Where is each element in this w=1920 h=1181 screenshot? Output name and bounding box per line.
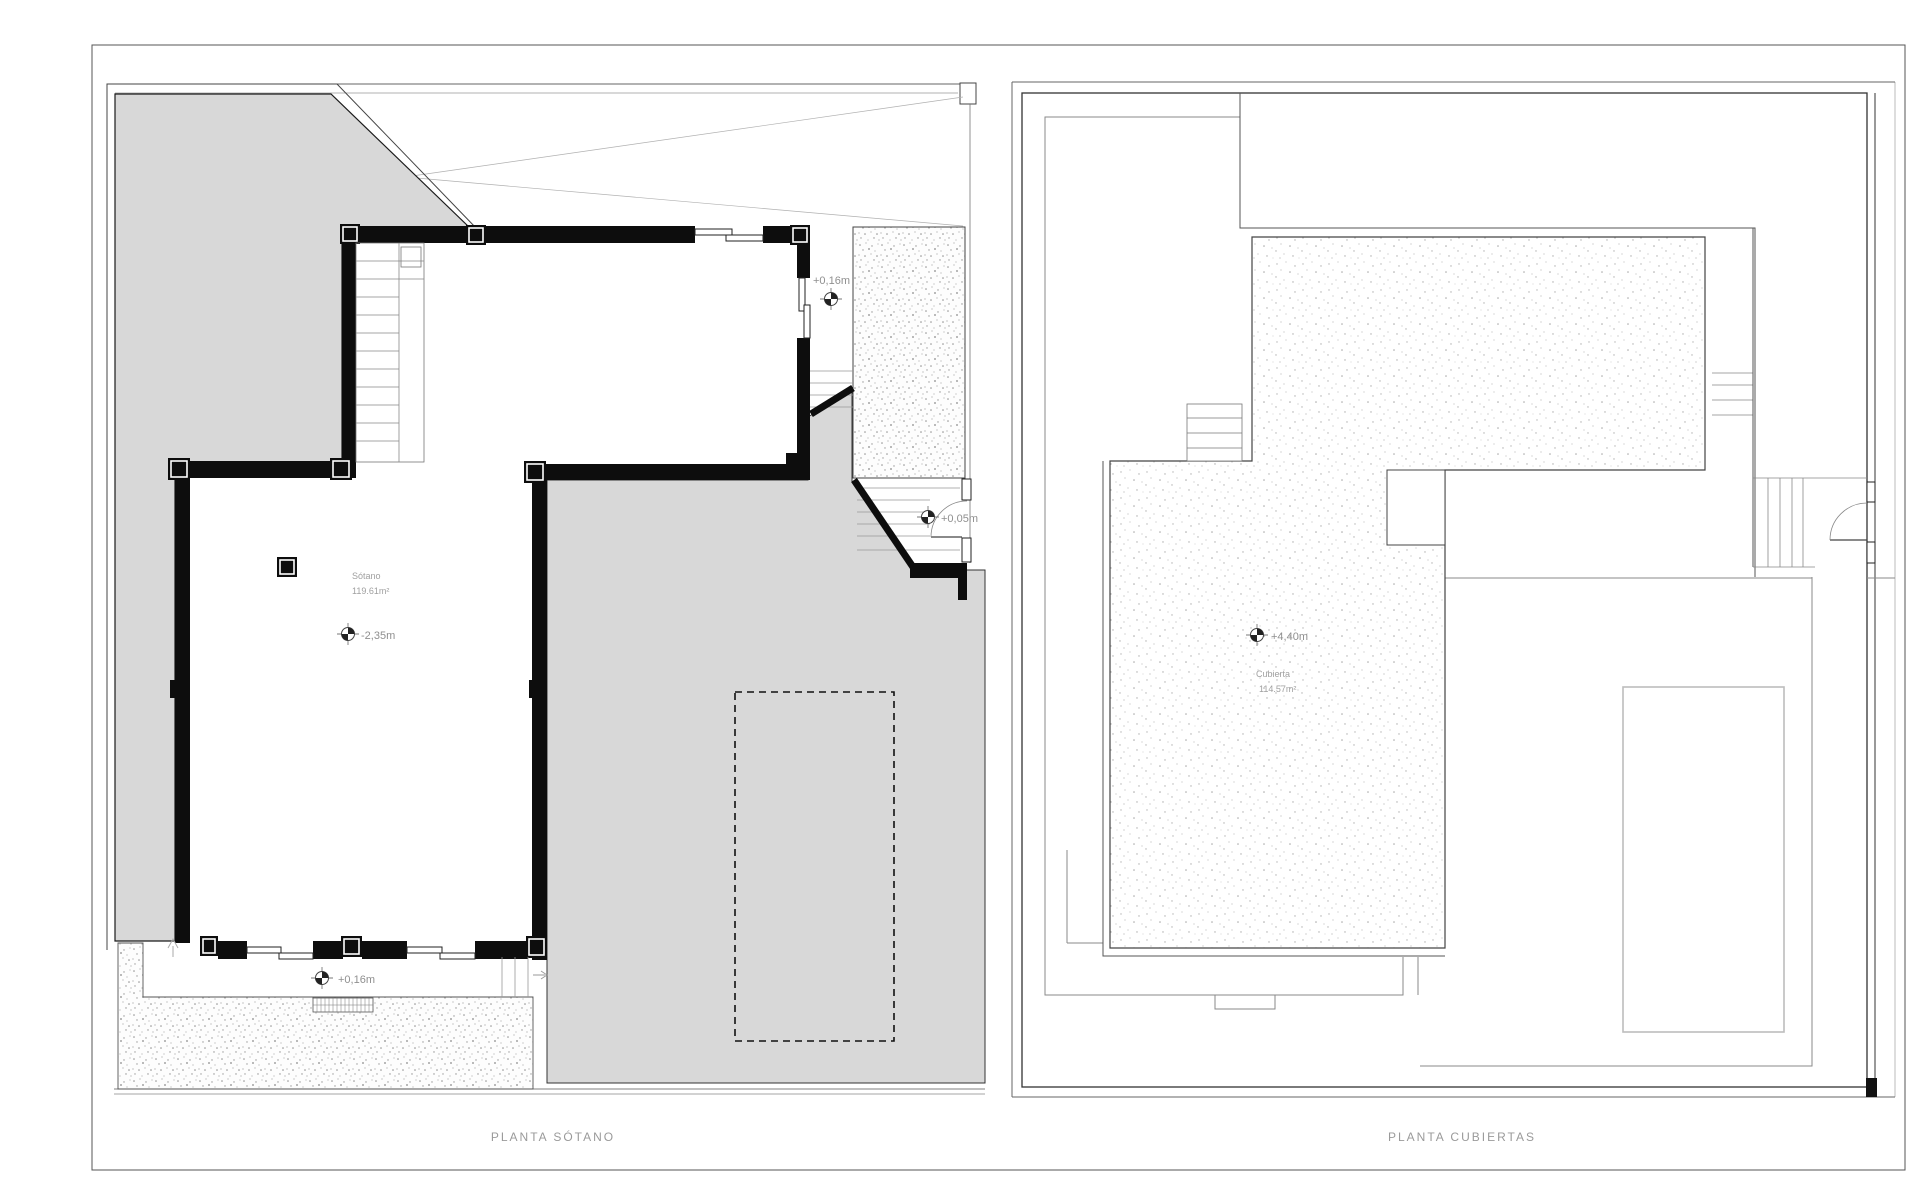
roof-label: Cubierta xyxy=(1256,669,1290,679)
level-terrace-right: +0,16m xyxy=(813,275,850,287)
drawing-sheet: -2,35m +0,16m +0,05m +0,16m Sótano 119.6… xyxy=(0,0,1920,1181)
direction-arrow xyxy=(533,971,547,979)
roof-right-stairs xyxy=(1712,228,1867,567)
level-terrace-bottom: +0,16m xyxy=(338,974,375,986)
level-door-right: +0,05m xyxy=(941,513,978,525)
level-roof: +4,40m xyxy=(1271,631,1308,643)
roof-notch xyxy=(1387,470,1445,545)
free-column xyxy=(277,557,297,577)
terrace-right-gray xyxy=(547,390,985,1083)
level-basement: -2,35m xyxy=(361,630,395,642)
door-swing-arc xyxy=(1830,503,1867,540)
patio-upper-gray xyxy=(115,94,470,941)
sand-area-right xyxy=(853,227,965,478)
corner-pillar xyxy=(960,83,976,104)
roof-entry-door xyxy=(1830,482,1875,563)
room-label: Sótano xyxy=(352,571,381,581)
level-marker-terrace-bottom xyxy=(311,967,333,989)
sight-line xyxy=(405,177,963,226)
sight-line xyxy=(405,97,963,177)
roof-gravel-area xyxy=(1110,237,1705,948)
interior-stair xyxy=(356,243,424,462)
sand-area-bottom xyxy=(118,943,533,1089)
level-marker-terrace-right xyxy=(820,288,842,310)
roof-area: 114.57m² xyxy=(1259,684,1296,694)
caption-right-plan: PLANTA CUBIERTAS xyxy=(1388,1130,1536,1144)
corner-post xyxy=(1866,1078,1877,1097)
floorplan-svg: -2,35m +0,16m +0,05m +0,16m Sótano 119.6… xyxy=(0,0,1920,1181)
pool-outline xyxy=(1623,687,1784,1032)
left-plan-basement: -2,35m +0,16m +0,05m +0,16m Sótano 119.6… xyxy=(107,83,985,1094)
room-area: 119.61m² xyxy=(352,586,389,596)
level-marker-basement xyxy=(337,623,359,645)
right-plan-roof: +4,40m Cubierta 114.57m² xyxy=(1012,82,1895,1097)
roof-stair-left xyxy=(1187,404,1242,461)
caption-left-plan: PLANTA SÓTANO xyxy=(491,1129,615,1144)
level-marker-door-right xyxy=(917,506,939,528)
grille xyxy=(313,998,373,1012)
